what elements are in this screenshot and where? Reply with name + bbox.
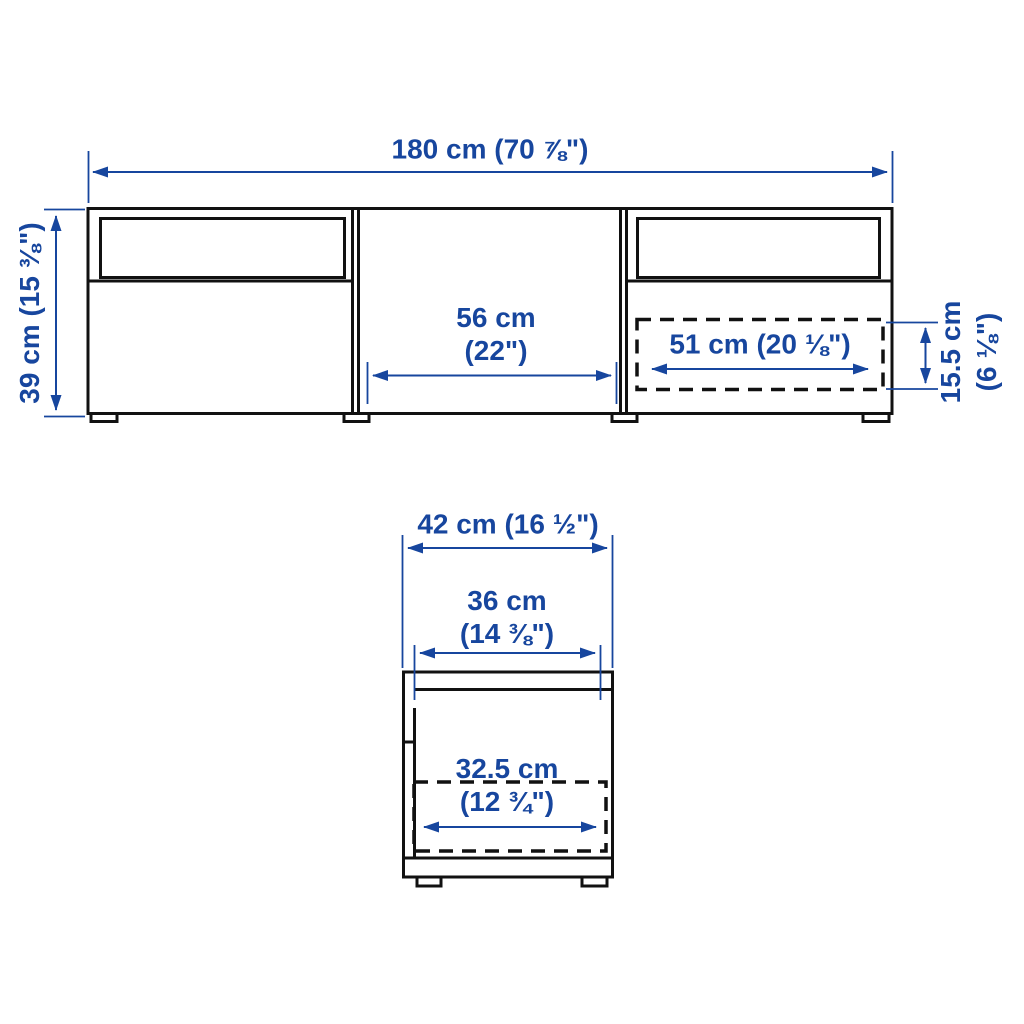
front-foot xyxy=(612,414,637,422)
side-drawer-depth-line2: (12 ¾") xyxy=(456,785,559,818)
front-drawer-height-line2: (6 ⅛") xyxy=(969,301,1005,404)
front-drawer-height-line1: 15.5 cm xyxy=(933,301,969,404)
side-drawer-depth-label: 32.5 cm (12 ¾") xyxy=(456,752,559,818)
side-interior-depth-label: 36 cm (14 ⅜") xyxy=(460,584,554,650)
front-overall-height-label: 39 cm (15 ⅜") xyxy=(12,222,48,403)
side-interior-depth-line2: (14 ⅜") xyxy=(460,617,554,650)
front-foot xyxy=(863,414,889,422)
side-drawer-depth-line1: 32.5 cm xyxy=(456,752,559,785)
front-drawer-width-label: 51 cm (20 ⅛") xyxy=(669,328,850,361)
front-height-dimension-arrow xyxy=(44,210,85,417)
side-interior-depth-line1: 36 cm xyxy=(460,584,554,617)
dimension-diagram: 180 cm (70 ⅞") 39 cm (15 ⅜") 56 cm (22")… xyxy=(0,0,1024,1024)
side-foot xyxy=(582,877,607,886)
front-foot xyxy=(344,414,369,422)
side-foot xyxy=(417,877,441,886)
front-center-width-label: 56 cm (22") xyxy=(456,301,535,367)
side-overall-depth-label: 42 cm (16 ½") xyxy=(417,508,598,541)
front-center-width-line2: (22") xyxy=(456,334,535,367)
front-drawer-height-label: 15.5 cm (6 ⅛") xyxy=(933,301,1005,404)
front-center-width-line1: 56 cm xyxy=(456,301,535,334)
front-foot xyxy=(91,414,117,422)
front-drawer-height-dimension-arrow xyxy=(886,323,938,390)
front-overall-width-label: 180 cm (70 ⅞") xyxy=(392,133,589,166)
